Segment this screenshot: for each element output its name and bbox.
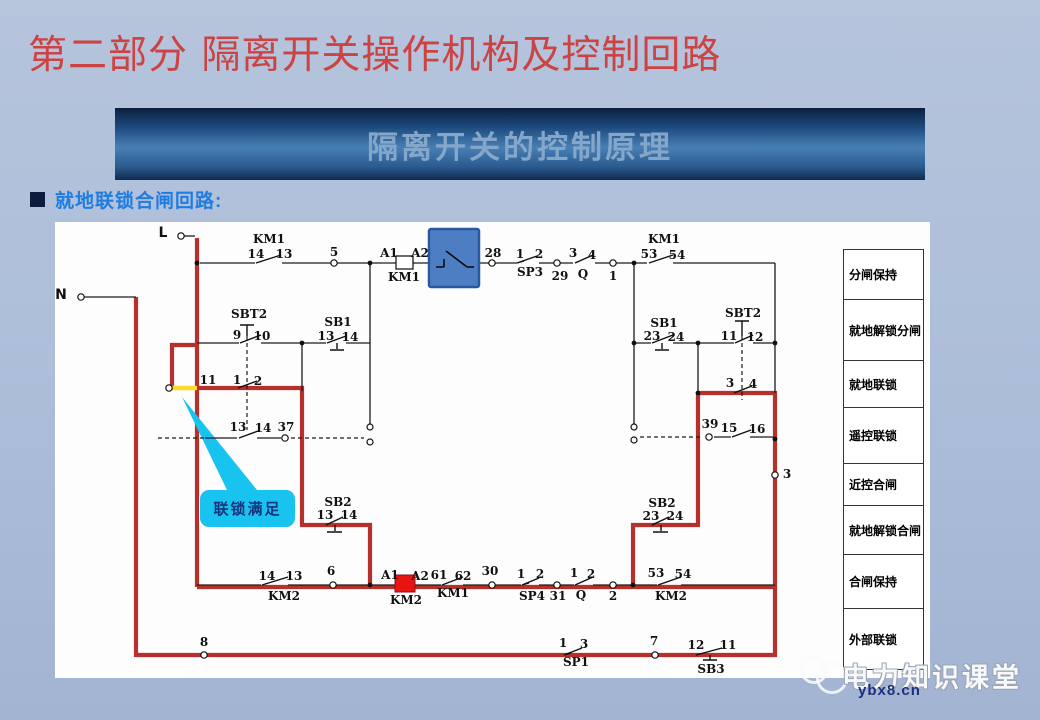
diagram-label: 1 [570,567,578,579]
diagram-label: 54 [675,568,692,580]
watermark-domain: ybx8.cn [858,682,921,699]
diagram-label: 61 [431,569,448,581]
diagram-label: 2 [609,590,617,602]
diagram-label: 10 [254,330,271,342]
diagram-label: 54 [669,249,686,261]
diagram-label: 1 [516,248,524,260]
diagram-label: 13 [276,248,293,260]
diagram-label: 7 [650,635,658,647]
diagram-label: 30 [482,565,499,577]
diagram-label: SB2 [324,496,351,508]
diagram-label: 11 [720,639,737,651]
diagram-label: 13 [317,509,334,521]
diagram-label: 13 [230,421,247,433]
diagram-label: SBT2 [231,308,267,320]
diagram-label: 23 [644,330,661,342]
diagram-label: SB2 [648,497,675,509]
diagram-label: 14 [342,331,359,343]
diagram-label: A1 [381,569,399,581]
diagram-label: 13 [318,330,335,342]
diagram-label: 12 [747,331,764,343]
diagram-labels: LNKM114135A1A2KM12812SP3293Q4153KM154SBT… [55,222,930,678]
diagram-label: 1 [233,374,241,386]
diagram-label: 2 [587,568,595,580]
diagram-label: A2 [411,570,429,582]
diagram-label: SB1 [650,317,677,329]
diagram-label: 14 [248,248,265,260]
side-table-row: 就地解锁分闸 [843,299,924,361]
diagram-label: 15 [721,422,738,434]
diagram-label: 29 [552,270,569,282]
diagram-label: 5 [330,246,338,258]
side-table-row: 合闸保持 [843,554,924,609]
diagram-label: 31 [550,590,567,602]
side-table-row: 遥控联锁 [843,407,924,464]
diagram-label: 3 [726,377,734,389]
diagram-label: 2 [535,248,543,260]
diagram-label: L [159,226,168,240]
side-table-row: 近控合闸 [843,463,924,506]
diagram-label: 11 [721,330,738,342]
diagram-label: 53 [641,248,658,260]
diagram-label: 53 [648,567,665,579]
diagram-label: 37 [278,421,295,433]
diagram-label: KM1 [388,271,420,283]
diagram-label: 13 [286,570,303,582]
section-banner: 隔离开关的控制原理 [115,108,925,180]
diagram-label: 3 [569,247,577,259]
diagram-label: KM1 [253,233,285,245]
side-table-row: 就地解锁合闸 [843,505,924,555]
diagram-label: 16 [749,423,766,435]
diagram-label: SP1 [563,656,589,668]
bullet-square-icon [30,192,45,207]
bullet-text: 就地联锁合闸回路: [55,186,222,213]
circuit-panel: LNKM114135A1A2KM12812SP3293Q4153KM154SBT… [55,222,930,678]
side-table: 分闸保持就地解锁分闸就地联锁遥控联锁近控合闸就地解锁合闸合闸保持外部联锁 [843,250,924,670]
diagram-label: 11 [200,374,217,386]
diagram-label: SBT2 [725,307,761,319]
diagram-label: SP3 [517,266,543,278]
diagram-label: 28 [485,247,502,259]
slide: { "page": { "title": "第二部分 隔离开关操作机构及控制回路… [0,0,1040,720]
diagram-label: KM1 [648,233,680,245]
diagram-label: N [55,288,67,302]
diagram-label: 62 [455,570,472,582]
diagram-label: 6 [327,565,335,577]
diagram-label: 3 [783,468,791,480]
diagram-label: 14 [255,422,272,434]
diagram-label: 4 [749,378,757,390]
diagram-label: A1 [380,247,398,259]
side-table-row: 分闸保持 [843,249,924,300]
diagram-label: SP4 [519,590,545,602]
callout-interlock-satisfied: 联锁满足 [200,490,295,527]
bullet-line: 就地联锁合闸回路: [30,186,222,213]
diagram-label: KM2 [268,590,300,602]
page-title: 第二部分 隔离开关操作机构及控制回路 [28,24,1018,80]
diagram-label: Q [576,589,586,601]
diagram-label: KM2 [390,594,422,606]
diagram-label: 3 [580,638,588,650]
diagram-label: 12 [688,639,705,651]
diagram-label: SB3 [697,663,724,675]
diagram-label: Q [578,268,588,280]
diagram-label: 2 [536,568,544,580]
side-table-row: 就地联锁 [843,360,924,408]
diagram-label: 1 [609,270,617,282]
diagram-label: SB1 [324,316,351,328]
diagram-label: 4 [588,249,596,261]
diagram-label: 14 [341,509,358,521]
diagram-label: 24 [667,510,684,522]
diagram-label: 9 [233,329,241,341]
diagram-label: A2 [411,247,429,259]
diagram-label: 1 [559,637,567,649]
diagram-label: 23 [643,510,660,522]
diagram-label: KM2 [655,590,687,602]
diagram-label: 14 [259,570,276,582]
diagram-label: 24 [668,331,685,343]
banner-title: 隔离开关的控制原理 [367,122,673,167]
diagram-label: 8 [200,636,208,648]
diagram-label: 1 [517,568,525,580]
diagram-label: 2 [254,375,262,387]
diagram-label: 39 [702,418,719,430]
diagram-label: KM1 [437,587,469,599]
